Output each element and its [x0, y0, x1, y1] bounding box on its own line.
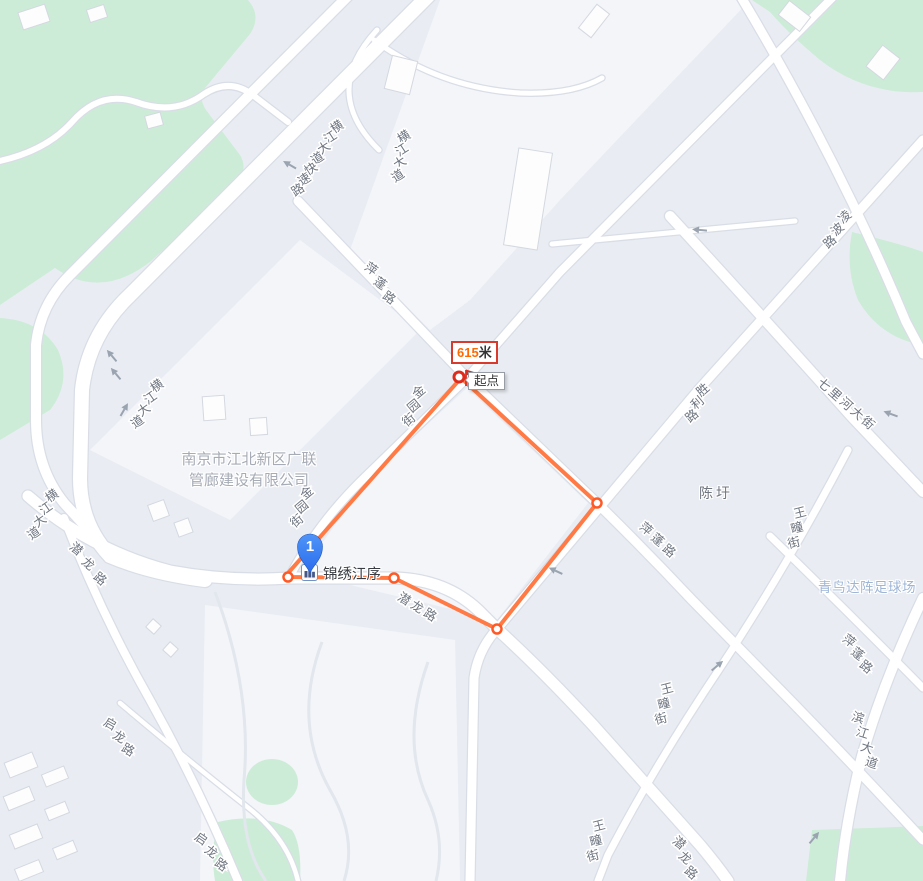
company-label-line2: 管廊建设有限公司 — [149, 470, 349, 491]
map-canvas[interactable]: 横江大道快速路横江大道横江大道横江大道潜龙路启龙路启龙路萍蓬路金园街金园街胜利路… — [0, 0, 923, 881]
road-direction-arrow — [104, 348, 119, 364]
road-label-char: 王 — [659, 681, 675, 698]
road-label-char: 路 — [660, 541, 680, 561]
road-direction-arrow — [882, 408, 898, 420]
road-direction-arrow — [281, 158, 297, 172]
route-vertex[interactable] — [593, 499, 602, 508]
company-label-line1: 南京市江北新区广联 — [149, 449, 349, 470]
basemap: 横江大道快速路横江大道横江大道横江大道潜龙路启龙路启龙路萍蓬路金园街金园街胜利路… — [0, 0, 923, 881]
distance-badge: 615米 — [451, 341, 498, 364]
road-label: 王疃街 — [653, 681, 675, 728]
road-label-char: 街 — [653, 711, 669, 728]
distance-value: 615 — [457, 345, 479, 360]
poi-label[interactable]: 锦绣江序 — [323, 563, 381, 584]
road-label-char: 道 — [863, 754, 880, 771]
route-vertex[interactable] — [390, 574, 399, 583]
company-label: 南京市江北新区广联 管廊建设有限公司 — [149, 449, 349, 491]
route-vertex[interactable] — [493, 625, 502, 634]
road-label-char: 王 — [591, 818, 607, 835]
pin-number: 1 — [296, 538, 324, 555]
poi-marker-pin[interactable]: 1 — [296, 533, 324, 575]
road-label-char: 疃 — [656, 695, 672, 713]
distance-unit: 米 — [479, 345, 492, 360]
poi-label-football-field: 青鸟达阵足球场 — [818, 576, 916, 596]
road-direction-arrow — [108, 366, 123, 382]
route-vertex[interactable] — [284, 573, 293, 582]
road-label: 七里河大街 — [815, 376, 878, 433]
place-label-chenxu: 陈圩 — [699, 483, 733, 503]
road-label-char: 疃 — [588, 832, 604, 850]
road-label-char: 街 — [585, 848, 601, 865]
start-tooltip: 起点 — [468, 372, 505, 390]
road-label-char: 疃 — [789, 519, 805, 537]
road-label: 启龙路 — [101, 715, 138, 760]
road-label-char: 王 — [792, 505, 808, 522]
